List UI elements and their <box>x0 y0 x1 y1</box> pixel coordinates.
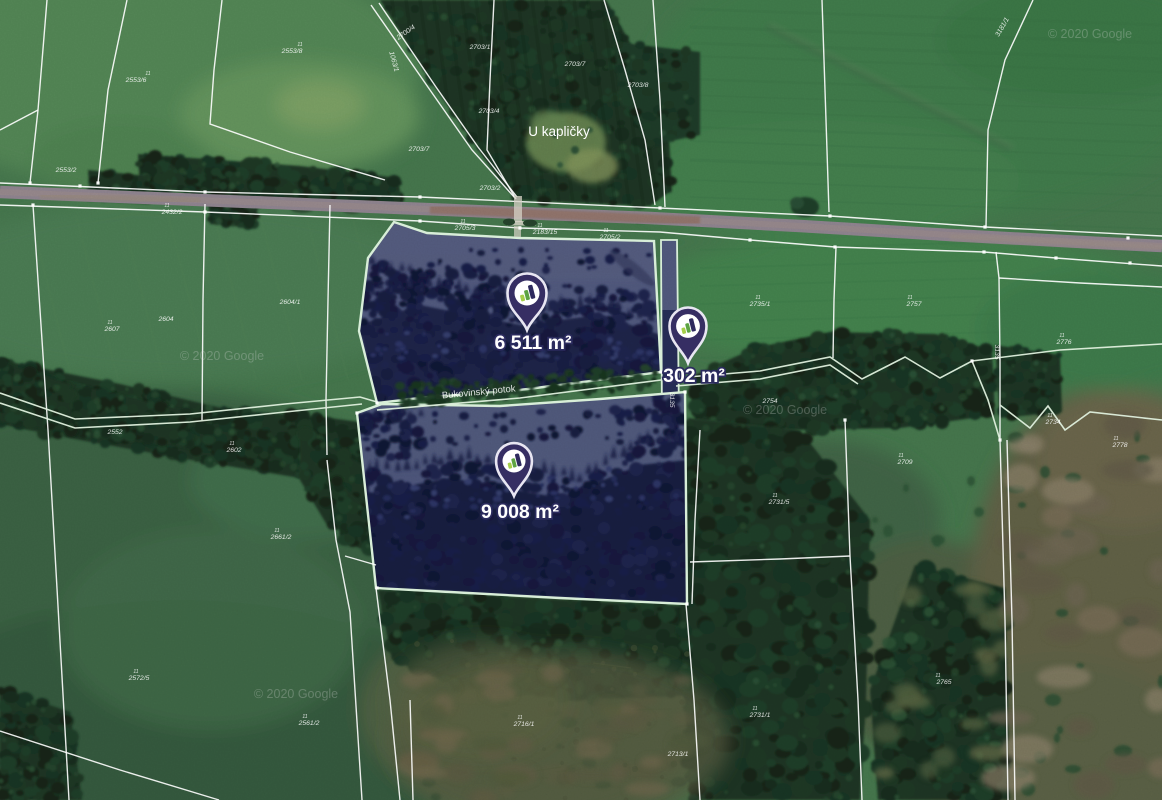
svg-text:2703/7: 2703/7 <box>564 61 586 68</box>
svg-text:2661/2: 2661/2 <box>270 534 292 541</box>
svg-text:2713/1: 2713/1 <box>667 751 689 758</box>
svg-text:2731/5: 2731/5 <box>768 499 790 506</box>
svg-text:2778: 2778 <box>1111 442 1127 449</box>
svg-text:2553/8: 2553/8 <box>281 48 303 55</box>
svg-text:11: 11 <box>460 219 465 225</box>
svg-text:2735/1: 2735/1 <box>749 301 771 308</box>
svg-text:11: 11 <box>772 493 777 499</box>
svg-text:2709: 2709 <box>896 459 912 466</box>
svg-text:2765: 2765 <box>935 679 951 686</box>
svg-text:11: 11 <box>935 673 940 679</box>
svg-text:3135: 3135 <box>993 344 1000 359</box>
svg-text:302 m²: 302 m² <box>663 365 725 387</box>
svg-text:2552: 2552 <box>106 429 122 436</box>
svg-text:© 2020 Google: © 2020 Google <box>254 687 338 701</box>
svg-text:2705/3: 2705/3 <box>454 225 476 232</box>
svg-text:2705/2: 2705/2 <box>599 234 621 241</box>
svg-text:11: 11 <box>1113 436 1118 442</box>
svg-text:2553/2: 2553/2 <box>55 167 77 174</box>
svg-text:11: 11 <box>229 441 234 447</box>
svg-text:11: 11 <box>603 228 608 234</box>
svg-text:2731/1: 2731/1 <box>749 712 771 719</box>
svg-text:2432/2: 2432/2 <box>161 209 183 216</box>
svg-text:2734: 2734 <box>1044 419 1060 426</box>
svg-text:2561/2: 2561/2 <box>298 720 320 727</box>
svg-text:11: 11 <box>164 203 169 209</box>
svg-text:2703/1: 2703/1 <box>469 44 491 51</box>
svg-text:2757: 2757 <box>905 301 921 308</box>
svg-text:2776: 2776 <box>1055 339 1071 346</box>
svg-text:11: 11 <box>517 715 522 721</box>
svg-text:2703/7: 2703/7 <box>408 146 430 153</box>
svg-text:9 008 m²: 9 008 m² <box>481 501 560 523</box>
svg-text:11: 11 <box>107 320 112 326</box>
svg-text:11: 11 <box>133 669 138 675</box>
svg-text:2572/5: 2572/5 <box>128 675 150 682</box>
svg-text:© 2020 Google: © 2020 Google <box>1048 27 1132 41</box>
svg-text:3135: 3135 <box>668 392 675 407</box>
svg-text:11: 11 <box>1047 413 1052 419</box>
svg-text:11: 11 <box>302 714 307 720</box>
svg-text:© 2020 Google: © 2020 Google <box>180 349 264 363</box>
svg-text:2716/1: 2716/1 <box>513 721 535 728</box>
svg-text:11: 11 <box>755 295 760 301</box>
svg-text:11: 11 <box>907 295 912 301</box>
svg-text:2602: 2602 <box>225 447 241 454</box>
svg-text:2183/15: 2183/15 <box>532 229 558 236</box>
svg-text:U kapličky: U kapličky <box>528 124 590 139</box>
svg-text:2607: 2607 <box>103 326 119 333</box>
svg-text:2604/1: 2604/1 <box>279 299 301 306</box>
svg-text:11: 11 <box>1059 333 1064 339</box>
svg-text:11: 11 <box>537 223 542 229</box>
svg-text:11: 11 <box>145 71 150 77</box>
svg-text:2703/8: 2703/8 <box>627 82 649 89</box>
svg-text:2604: 2604 <box>157 316 173 323</box>
svg-text:2703/2: 2703/2 <box>479 185 501 192</box>
svg-text:2553/6: 2553/6 <box>125 77 147 84</box>
svg-text:© 2020 Google: © 2020 Google <box>743 403 827 417</box>
svg-text:11: 11 <box>274 528 279 534</box>
svg-text:6 511 m²: 6 511 m² <box>495 332 572 354</box>
svg-text:11: 11 <box>297 42 302 48</box>
svg-text:11: 11 <box>898 453 903 459</box>
svg-text:11: 11 <box>752 706 757 712</box>
svg-text:2703/4: 2703/4 <box>478 108 500 115</box>
